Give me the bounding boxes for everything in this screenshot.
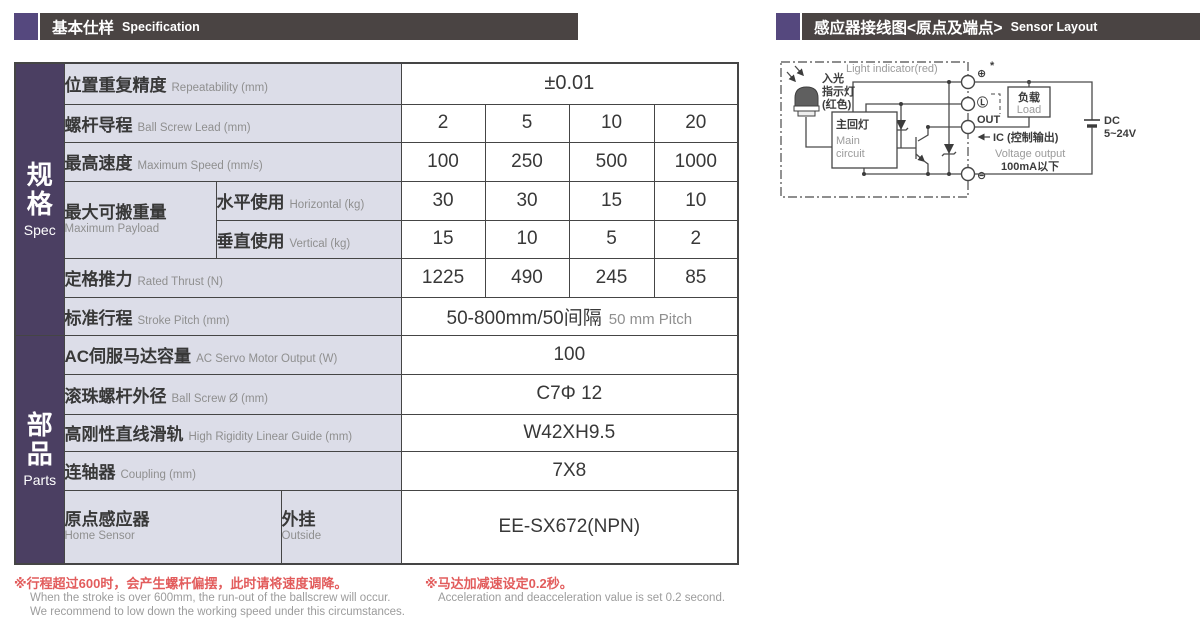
- dc-voltage-label: 5~24V: [1104, 128, 1137, 140]
- label-coupling: 连轴器Coupling (mm): [64, 451, 401, 490]
- label-repeatability: 位置重复精度Repeatability (mm): [64, 63, 401, 104]
- sidebar-parts-char: 品: [16, 440, 64, 469]
- label-rated-thrust: 定格推力Rated Thrust (N): [64, 258, 401, 297]
- value-cell: 2: [401, 104, 485, 142]
- junction-dot: [926, 172, 930, 176]
- label-max-speed: 最高速度Maximum Speed (mm/s): [64, 142, 401, 181]
- main-circuit-label-en: Main: [836, 135, 860, 147]
- label-en: Maximum Payload: [65, 223, 216, 236]
- emitter-wire: [924, 161, 928, 174]
- plus-wire: [853, 82, 961, 112]
- section-header-sensor-layout: 感应器接线图<原点及端点> Sensor Layout: [776, 13, 1200, 40]
- value-cell: 5: [569, 220, 654, 258]
- load-label-en: Load: [1017, 104, 1041, 116]
- label-zh: 外挂: [282, 510, 401, 530]
- value-repeatability: ±0.01: [401, 63, 738, 104]
- table-row: 原点感应器 Home Sensor 外挂 Outside EE-SX672(NP…: [15, 490, 738, 564]
- label-en: Ball Screw Ø (mm): [172, 393, 268, 405]
- terminal-plus: [962, 76, 975, 89]
- table-row: 规 格 Spec 位置重复精度Repeatability (mm) ±0.01: [15, 63, 738, 104]
- header-bar: 基本仕样 Specification: [40, 13, 578, 40]
- label-en: Stroke Pitch (mm): [138, 315, 230, 327]
- label-max-payload: 最大可搬重量 Maximum Payload: [64, 181, 216, 258]
- label-en: Coupling (mm): [121, 469, 196, 481]
- label-servo-output: AC伺服马达容量AC Servo Motor Output (W): [64, 335, 401, 374]
- header-title-zh: 基本仕样: [52, 16, 114, 38]
- ic-output-label: IC (控制输出): [993, 130, 1059, 144]
- label-zh: 螺杆导程: [65, 111, 133, 136]
- table-row: 部 品 Parts AC伺服马达容量AC Servo Motor Output …: [15, 335, 738, 374]
- light-indicator-zh-label: 指示灯: [822, 84, 855, 98]
- value-cell: 15: [569, 181, 654, 220]
- light-indicator-zh-label: (红色): [822, 97, 852, 111]
- sidebar-parts-char: 部: [16, 411, 64, 440]
- table-row: 连轴器Coupling (mm) 7X8: [15, 451, 738, 490]
- terminal-plus-symbol: ⊕: [977, 68, 986, 80]
- light-indicator-zh-label: 入光: [822, 71, 844, 85]
- label-zh: AC伺服马达容量: [65, 342, 192, 367]
- table-row: 高刚性直线滑轨High Rigidity Linear Guide (mm) W…: [15, 414, 738, 451]
- optional-wire-dashes: [991, 94, 1000, 114]
- label-zh: 最大可搬重量: [65, 203, 216, 223]
- label-payload-vertical: 垂直使用Vertical (kg): [216, 220, 401, 258]
- label-zh: 水平使用: [217, 188, 285, 213]
- value-cell: 2: [654, 220, 738, 258]
- terminal-l: [962, 98, 975, 111]
- value-cell: 5: [485, 104, 569, 142]
- terminal-minus: [962, 168, 975, 181]
- voltage-output-label: Voltage output: [995, 148, 1065, 160]
- section-header-specification: 基本仕样 Specification: [14, 13, 578, 40]
- asterisk: *: [990, 60, 995, 72]
- footnote2-zh: ※马达加减速设定0.2秒。: [425, 573, 573, 592]
- label-zh: 滚珠螺杆外径: [65, 382, 167, 407]
- sidebar-spec-char: 规: [16, 161, 64, 190]
- sidebar-spec-char: 格: [16, 190, 64, 219]
- header-title-en: Sensor Layout: [1011, 20, 1098, 34]
- label-en: Home Sensor: [65, 530, 281, 543]
- label-zh: 原点感应器: [65, 510, 281, 530]
- junction-dot: [926, 125, 930, 129]
- label-en: Outside: [282, 530, 401, 543]
- collector-wire: [918, 127, 928, 141]
- label-payload-horizontal: 水平使用Horizontal (kg): [216, 181, 401, 220]
- label-en: Horizontal (kg): [290, 199, 365, 211]
- sidebar-parts: 部 品 Parts: [15, 335, 64, 564]
- value-ball-screw-dia: C7Φ 12: [401, 374, 738, 414]
- value-cell: 30: [485, 181, 569, 220]
- label-zh: 定格推力: [65, 265, 133, 290]
- led-base: [798, 111, 815, 116]
- sidebar-spec-en: Spec: [16, 222, 64, 238]
- light-indicator-en-label: Light indicator(red): [846, 63, 938, 75]
- value-cell: 15: [401, 220, 485, 258]
- sidebar-spec: 规 格 Spec: [15, 63, 64, 335]
- header-bar: 感应器接线图<原点及端点> Sensor Layout: [802, 13, 1200, 40]
- label-en: High Rigidity Linear Guide (mm): [189, 431, 353, 443]
- accent-square: [776, 13, 800, 40]
- value-cell: 20: [654, 104, 738, 142]
- footnote1-en-line2: We recommend to low down the working spe…: [30, 606, 405, 618]
- label-zh: 高刚性直线滑轨: [65, 420, 184, 445]
- label-linear-guide: 高刚性直线滑轨High Rigidity Linear Guide (mm): [64, 414, 401, 451]
- label-en: Ball Screw Lead (mm): [138, 122, 251, 134]
- value-cell: 30: [401, 181, 485, 220]
- value-cell: 490: [485, 258, 569, 297]
- value-zh: 50-800mm/50间隔: [447, 308, 602, 329]
- label-en: Maximum Speed (mm/s): [138, 160, 263, 172]
- junction-dot: [862, 172, 866, 176]
- value-cell: 1000: [654, 142, 738, 181]
- terminal-out-label: OUT: [977, 114, 1001, 126]
- footnote1-en-line1: When the stroke is over 600mm, the run-o…: [30, 592, 391, 604]
- sensor-wiring-diagram: 主回灯 Main circuit ⊕ * Ⓛ OUT ⊖ Light indic…: [776, 54, 1198, 206]
- label-zh: 垂直使用: [217, 227, 285, 252]
- label-home-sensor: 原点感应器 Home Sensor: [64, 490, 281, 564]
- value-cell: 10: [654, 181, 738, 220]
- specification-table: 规 格 Spec 位置重复精度Repeatability (mm) ±0.01 …: [14, 62, 739, 565]
- label-en: Repeatability (mm): [172, 82, 269, 94]
- footnote2-en: Acceleration and deacceleration value is…: [438, 592, 725, 604]
- zener-diode-icon: [944, 144, 954, 154]
- load-label-zh: 负载: [1018, 90, 1040, 104]
- value-linear-guide: W42XH9.5: [401, 414, 738, 451]
- value-cell: 100: [401, 142, 485, 181]
- table-row: 最大可搬重量 Maximum Payload 水平使用Horizontal (k…: [15, 181, 738, 220]
- junction-dot: [947, 172, 951, 176]
- value-cell: 1225: [401, 258, 485, 297]
- label-stroke-pitch: 标准行程Stroke Pitch (mm): [64, 297, 401, 335]
- label-ball-screw-lead: 螺杆导程Ball Screw Lead (mm): [64, 104, 401, 142]
- terminal-l-symbol: Ⓛ: [977, 95, 988, 109]
- value-en: 50 mm Pitch: [609, 311, 692, 328]
- value-home-sensor: EE-SX672(NPN): [401, 490, 738, 564]
- led-band: [794, 106, 819, 111]
- label-zh: 标准行程: [65, 304, 133, 329]
- table-row: 最高速度Maximum Speed (mm/s) 100 250 500 100…: [15, 142, 738, 181]
- table-row: 定格推力Rated Thrust (N) 1225 490 245 85: [15, 258, 738, 297]
- l-wire: [866, 104, 961, 112]
- label-en: Rated Thrust (N): [138, 276, 223, 288]
- spec-sheet-page: 基本仕样 Specification 感应器接线图<原点及端点> Sensor …: [0, 0, 1200, 632]
- current-limit-label: 100mA以下: [1001, 160, 1059, 173]
- table-row: 螺杆导程Ball Screw Lead (mm) 2 5 10 20: [15, 104, 738, 142]
- main-circuit-label-en: circuit: [836, 148, 865, 160]
- terminal-out: [962, 121, 975, 134]
- label-ball-screw-dia: 滚珠螺杆外径Ball Screw Ø (mm): [64, 374, 401, 414]
- emitter-arrow: [916, 154, 924, 161]
- label-en: AC Servo Motor Output (W): [196, 353, 337, 365]
- value-servo-output: 100: [401, 335, 738, 374]
- light-ray-arrow: [795, 66, 803, 75]
- label-en: Vertical (kg): [290, 238, 351, 250]
- value-cell: 500: [569, 142, 654, 181]
- terminal-minus-symbol: ⊖: [977, 170, 986, 182]
- accent-square: [14, 13, 38, 40]
- label-zh: 位置重复精度: [65, 71, 167, 96]
- junction-dot: [947, 80, 951, 84]
- value-cell: 85: [654, 258, 738, 297]
- value-cell: 10: [569, 104, 654, 142]
- value-cell: 10: [485, 220, 569, 258]
- footnote1-zh: ※行程超过600时，会产生螺杆偏摆，此时请将速度调降。: [14, 573, 347, 592]
- value-cell: 250: [485, 142, 569, 181]
- main-circuit-label-zh: 主回灯: [836, 117, 869, 131]
- header-title-zh: 感应器接线图<原点及端点>: [814, 16, 1003, 38]
- dc-label: DC: [1104, 115, 1120, 127]
- table-row: 滚珠螺杆外径Ball Screw Ø (mm) C7Φ 12: [15, 374, 738, 414]
- label-zh: 连轴器: [65, 458, 116, 483]
- label-home-sensor-outside: 外挂 Outside: [281, 490, 401, 564]
- light-ray-arrow: [787, 72, 795, 81]
- value-stroke-pitch: 50-800mm/50间隔50 mm Pitch: [401, 297, 738, 335]
- sidebar-parts-en: Parts: [16, 472, 64, 488]
- value-cell: 245: [569, 258, 654, 297]
- table-row: 标准行程Stroke Pitch (mm) 50-800mm/50间隔50 mm…: [15, 297, 738, 335]
- junction-dot: [899, 102, 903, 106]
- header-title-en: Specification: [122, 20, 200, 34]
- value-coupling: 7X8: [401, 451, 738, 490]
- label-zh: 最高速度: [65, 149, 133, 174]
- led-wire: [806, 117, 832, 147]
